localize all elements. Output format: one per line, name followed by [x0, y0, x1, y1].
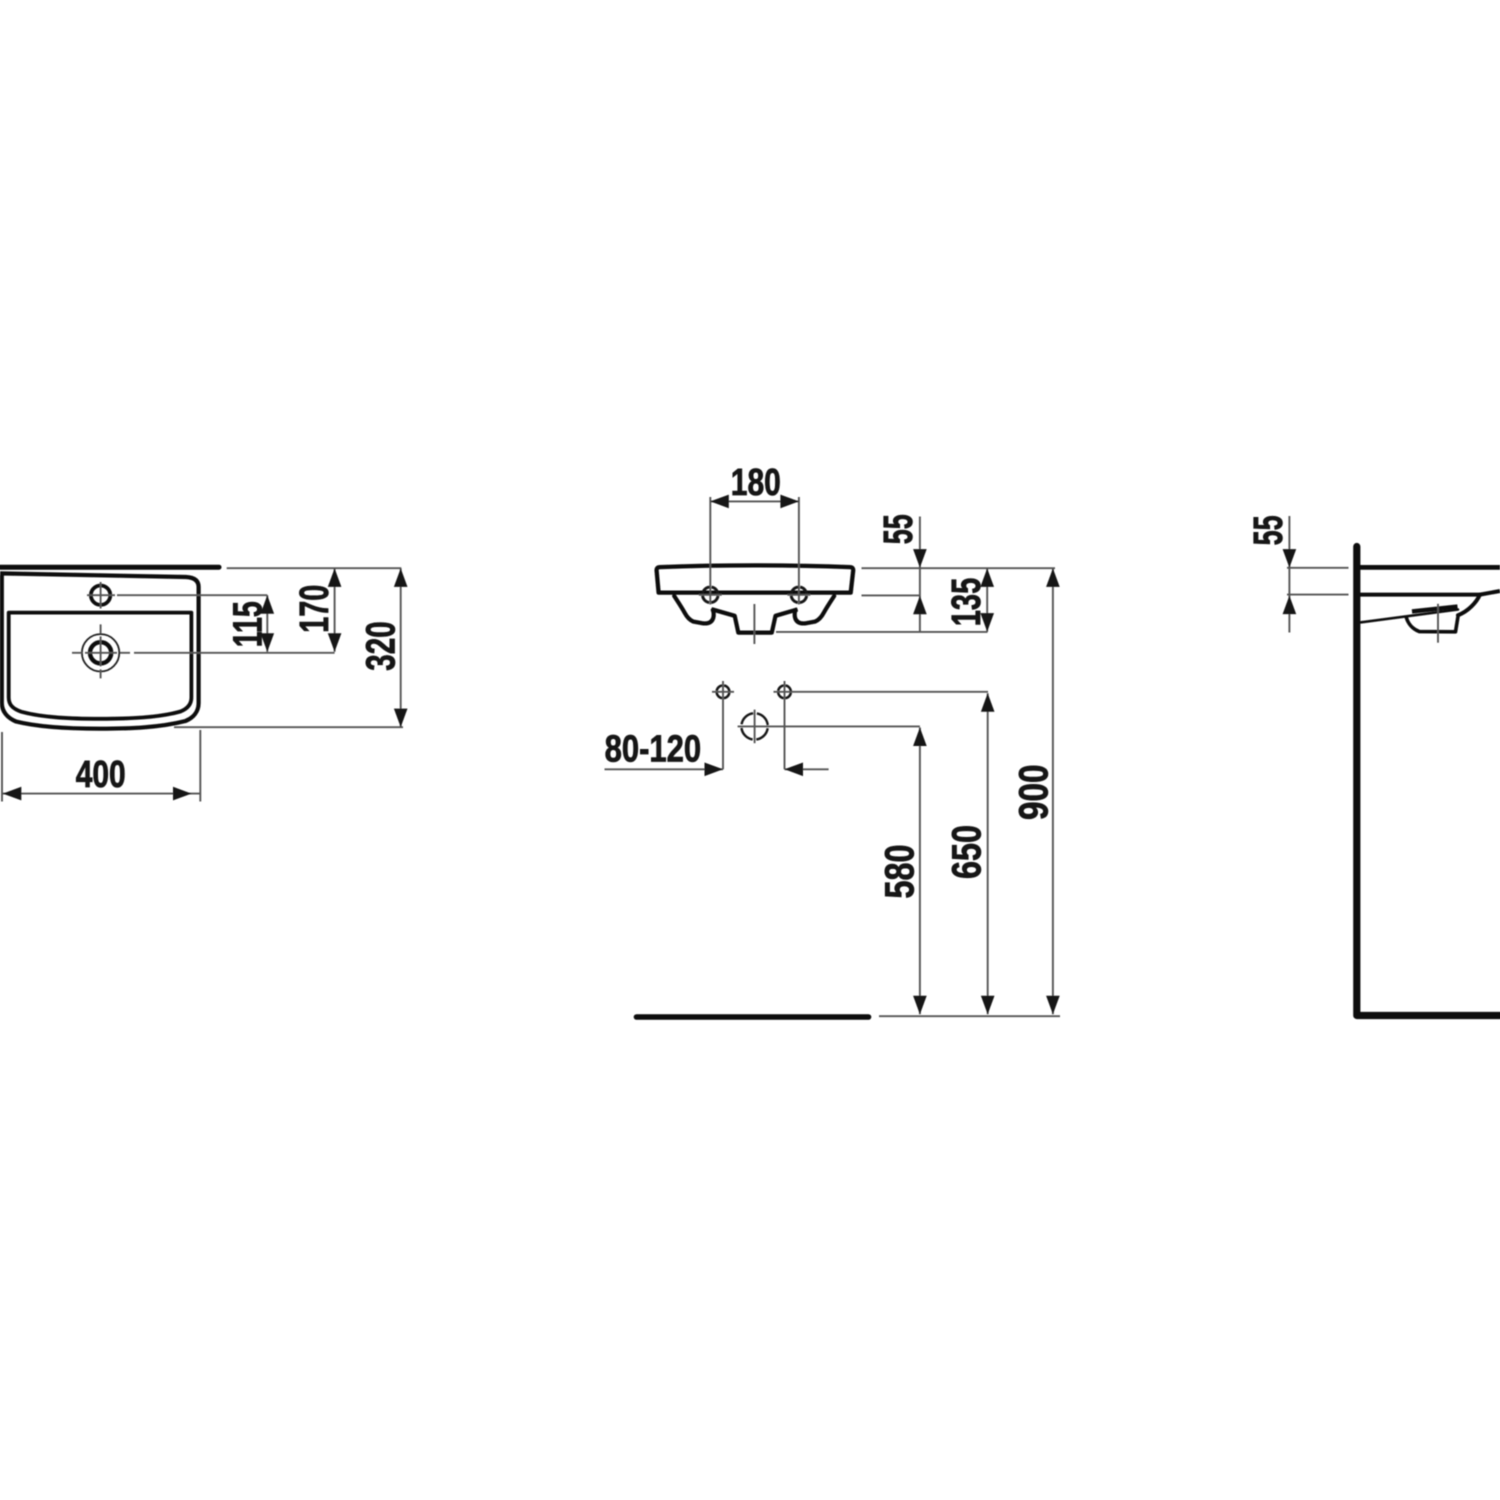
- svg-text:580: 580: [876, 845, 922, 899]
- svg-text:55: 55: [875, 514, 921, 544]
- svg-text:400: 400: [76, 754, 126, 796]
- svg-text:320: 320: [358, 621, 404, 670]
- svg-text:135: 135: [943, 578, 989, 627]
- svg-text:55: 55: [1245, 515, 1291, 545]
- svg-text:80-120: 80-120: [605, 728, 702, 770]
- svg-text:115: 115: [224, 601, 270, 647]
- svg-text:900: 900: [1010, 765, 1056, 821]
- svg-text:170: 170: [291, 585, 337, 633]
- svg-text:180: 180: [731, 462, 781, 504]
- svg-text:650: 650: [943, 825, 989, 879]
